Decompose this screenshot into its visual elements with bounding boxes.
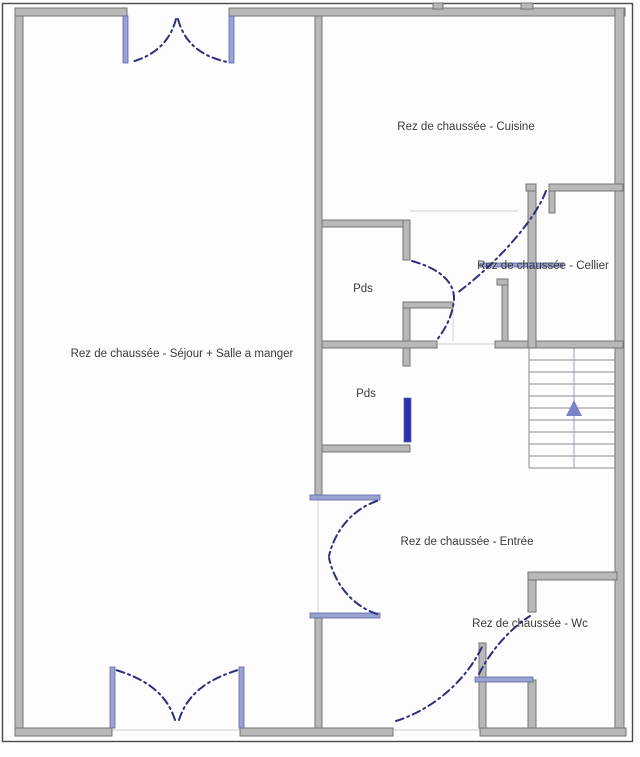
room-label-entree: Rez de chaussée - Entrée <box>401 536 534 548</box>
wall-shaft-stub <box>497 279 508 285</box>
wall-main-h-right <box>495 341 623 348</box>
wall-right <box>615 8 624 736</box>
floor-plan-page: Rez de chaussée - CuisineRez de chaussée… <box>0 0 640 757</box>
room-label-cuisine: Rez de chaussée - Cuisine <box>397 121 534 133</box>
wall-pds2-bottom <box>322 445 410 452</box>
door-sejour-upper <box>310 495 380 500</box>
room-label-pds2: Pds <box>356 388 376 400</box>
door-jamb-bottom-left <box>110 667 115 728</box>
wall-cellier-jamb <box>549 191 555 213</box>
door-jamb-bottom-right <box>239 667 244 728</box>
room-label-cellier: Rez de chaussée - Cellier <box>477 260 609 272</box>
wall-top-left <box>15 8 127 16</box>
wall-bottom-b <box>240 728 393 736</box>
room-label-pds1: Pds <box>353 283 373 295</box>
wall-bottom-a <box>15 728 112 736</box>
wall-pds1-top <box>322 220 410 227</box>
wall-top-right <box>229 8 625 16</box>
wall-mid-lower <box>315 617 322 728</box>
wall-pds1-bottom <box>322 341 437 348</box>
wall-wc-left-upper <box>528 580 536 612</box>
wall-cellier-top-small <box>526 184 536 191</box>
floor-plan-canvas: Rez de chaussée - CuisineRez de chaussée… <box>0 0 640 757</box>
door-pds2-leaf <box>404 398 411 442</box>
wall-cellier-top <box>549 184 623 191</box>
wall-nook <box>479 643 486 728</box>
door-jamb-top-right <box>229 16 234 63</box>
wall-wc-top <box>528 572 617 580</box>
room-label-wc: Rez de chaussée - Wc <box>472 618 588 630</box>
door-sejour-lower <box>310 613 380 618</box>
wall-hall-partition-h <box>403 302 453 308</box>
wall-shaft <box>502 280 508 341</box>
door-jamb-top-left <box>123 16 128 63</box>
room-label-sejour: Rez de chaussée - Séjour + Salle a mange… <box>71 348 294 360</box>
wall-wc-left-lower <box>528 680 536 728</box>
wall-pds1-right-upper <box>403 220 410 260</box>
wall-bottom-c <box>480 728 626 736</box>
wall-tab-b <box>521 3 533 9</box>
wall-tab-a <box>433 3 443 9</box>
wall-left <box>15 8 23 736</box>
wall-pds2-right-stub <box>403 348 410 366</box>
wall-mid-upper <box>315 16 322 495</box>
wall-pds1-right-lower <box>403 308 410 344</box>
door-wc-leaf <box>475 677 533 682</box>
